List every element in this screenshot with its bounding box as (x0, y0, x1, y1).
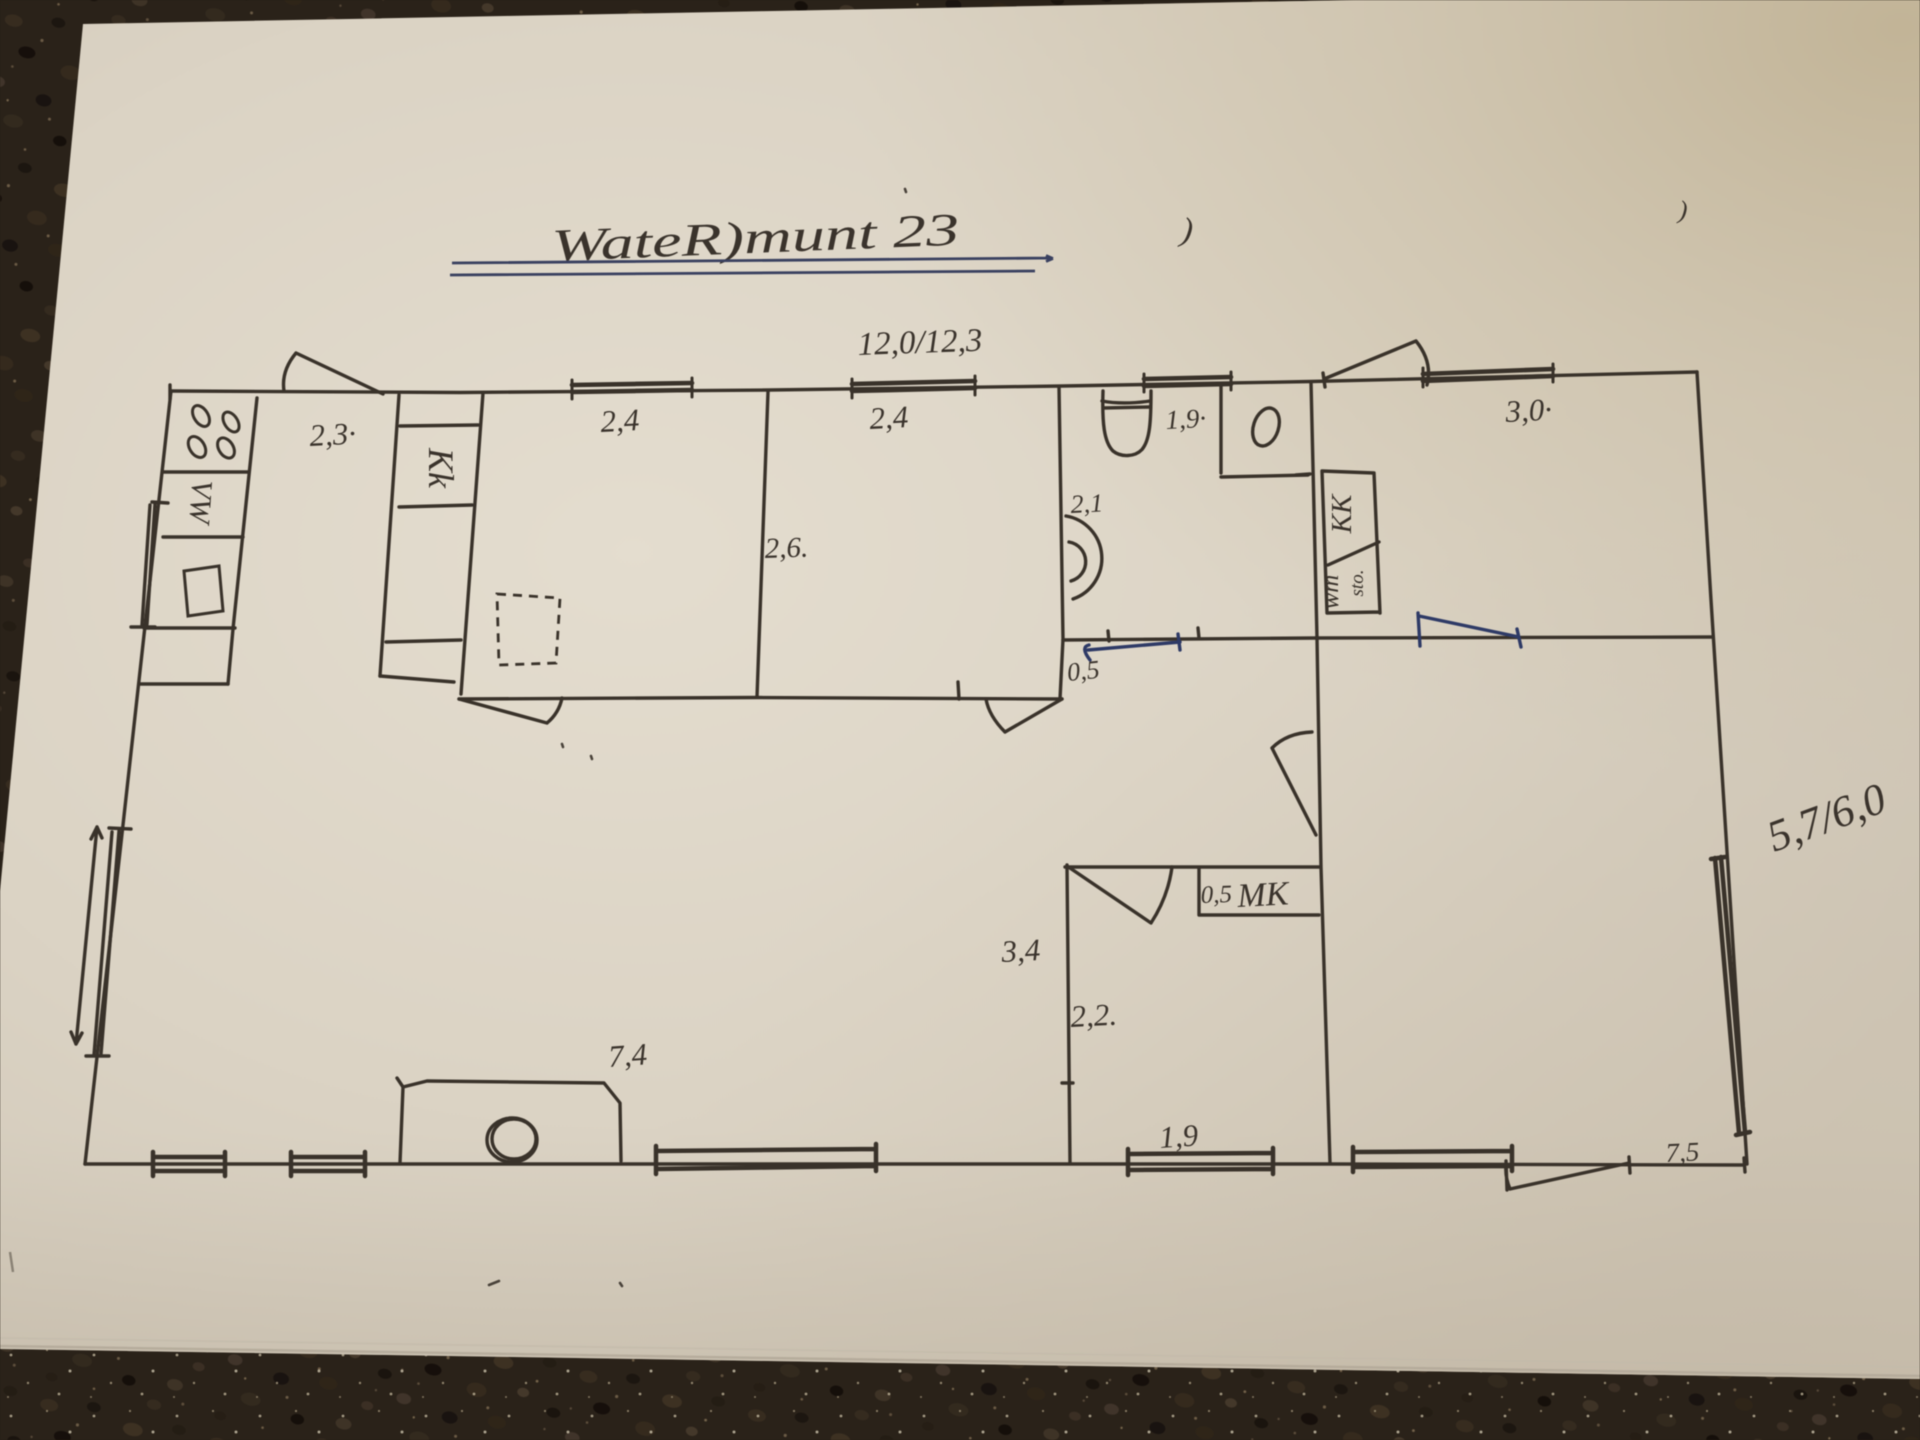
svg-text:7,4: 7,4 (607, 1036, 648, 1074)
svg-text:sto.: sto. (1347, 570, 1368, 597)
svg-text:12,0/12,3: 12,0/12,3 (857, 323, 983, 363)
svg-text:3,0·: 3,0· (1504, 392, 1553, 429)
svg-text:1,9·: 1,9· (1165, 403, 1207, 435)
svg-text:2,2.: 2,2. (1070, 997, 1118, 1034)
svg-text:KK: KK (1326, 493, 1358, 534)
svg-text:2,3·: 2,3· (309, 416, 357, 453)
svg-text:wm: wm (1317, 575, 1344, 610)
svg-text:3,4: 3,4 (1000, 932, 1042, 969)
svg-text:2,4: 2,4 (600, 402, 641, 439)
svg-text:2,6.: 2,6. (764, 531, 809, 564)
svg-text:7,5: 7,5 (1665, 1136, 1700, 1168)
svg-text:MK: MK (1235, 875, 1291, 915)
svg-text:2,4: 2,4 (869, 399, 910, 436)
svg-text:0,5: 0,5 (1200, 881, 1232, 909)
svg-text:2,1: 2,1 (1070, 488, 1104, 519)
svg-text:1,9: 1,9 (1158, 1117, 1199, 1155)
svg-text:VW: VW (182, 479, 218, 528)
svg-text:Kk: Kk (421, 447, 461, 489)
svg-text:0,5: 0,5 (1066, 655, 1101, 687)
